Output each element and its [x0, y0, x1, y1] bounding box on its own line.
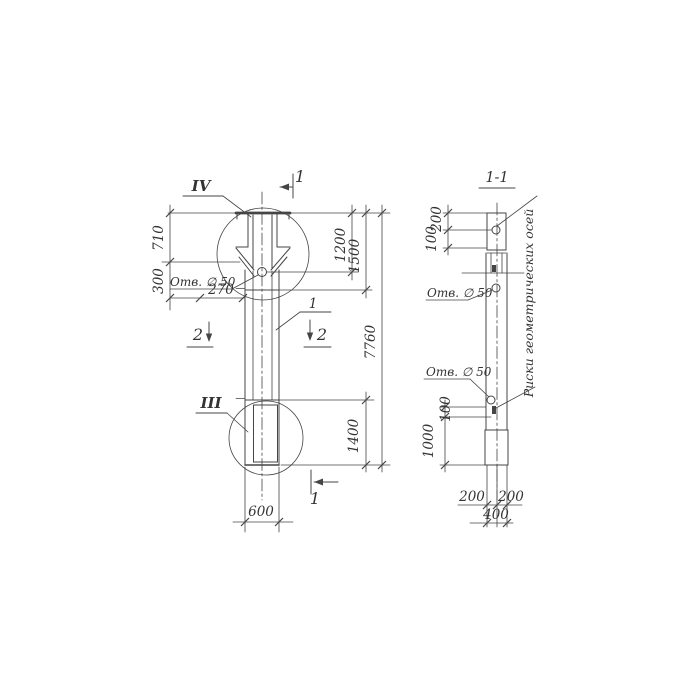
dim-1400: 1400: [346, 418, 362, 453]
section-hole-top: [492, 226, 500, 234]
section-mark-1-bottom: 1: [310, 470, 338, 508]
hole-note-lower-text: Отв. ∅ 50: [426, 365, 492, 379]
column-shaft-outline: [236, 270, 279, 532]
section-dims-topleft: 200 100: [424, 205, 492, 255]
section-mark-2-right: 2: [304, 320, 331, 347]
detail-label-III: III: [199, 394, 222, 412]
section-hole-mid: [492, 284, 500, 292]
section-hole-low: [487, 396, 495, 404]
dim-400: 400: [482, 507, 509, 523]
section-title-text: 1-1: [485, 170, 508, 186]
dim-710: 710: [151, 225, 167, 251]
axis-note-text: Риски геометрических осей: [521, 209, 536, 399]
section-dims-bottom: 200 200 400: [458, 489, 524, 527]
hole-note-section-upper: Отв. ∅ 50: [426, 286, 493, 300]
dim-1500: 1500: [347, 238, 363, 273]
section-number-left: 2: [192, 325, 203, 344]
front-view: IV III 1 1 2: [151, 167, 390, 532]
dim-600: 600: [248, 504, 274, 520]
dim-7760: 7760: [363, 324, 379, 359]
section-title: 1-1: [479, 170, 515, 188]
section-mark-2-left: 2: [187, 322, 213, 347]
detail-callout-III: III: [196, 394, 248, 432]
dim-1000: 1000: [421, 423, 437, 458]
dim-200-left: 200: [458, 489, 485, 505]
hole-note-upper-text: Отв. ∅ 50: [427, 286, 493, 300]
section-number-top: 1: [295, 167, 305, 186]
front-dims-left: 710 300 270: [151, 205, 247, 310]
drawing-canvas: IV III 1 1 2: [0, 0, 700, 700]
front-dim-width: 600: [233, 504, 293, 526]
section-mark-1-top: 1: [280, 167, 305, 198]
position-number: 1: [309, 296, 318, 312]
section-number-right: 2: [316, 325, 327, 344]
section-number-bottom: 1: [310, 489, 320, 508]
section-dims-bottomleft: 100 1000: [421, 396, 491, 472]
section-view: 1-1: [421, 170, 537, 527]
detail-circle-III: [229, 401, 303, 475]
axis-scribe-mark-lower: [492, 406, 496, 414]
section-embedded-part: [485, 430, 508, 465]
embedded-section: [254, 405, 278, 462]
detail-label-IV: IV: [191, 177, 212, 195]
column-head-outline: [236, 213, 290, 276]
dim-200-right: 200: [497, 489, 524, 505]
dim-270: 270: [207, 282, 234, 298]
detail-callout-IV: IV: [183, 177, 251, 217]
hole-note-section-lower: Отв. ∅ 50: [424, 365, 492, 397]
front-dims-right: 1200 1500 7760 1400: [267, 205, 390, 472]
technical-drawing: IV III 1 1 2: [0, 0, 700, 700]
dim-300: 300: [151, 268, 167, 294]
dim-100-mark: 100: [438, 396, 454, 422]
axis-note: Риски геометрических осей: [496, 196, 537, 408]
dim-100-head: 100: [424, 226, 440, 252]
axis-scribe-mark-upper: [492, 265, 496, 272]
